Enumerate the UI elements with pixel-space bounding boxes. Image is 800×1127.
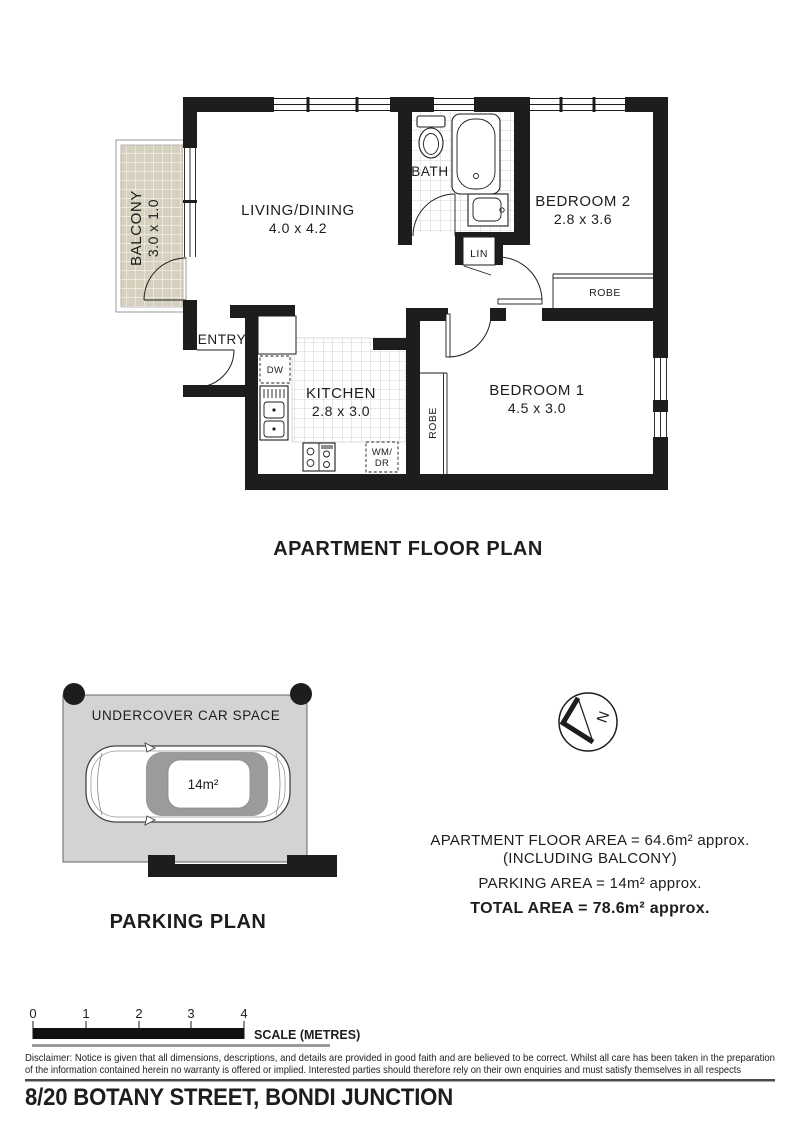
car-space-label: UNDERCOVER CAR SPACE (92, 708, 281, 723)
bedroom2-door (498, 257, 542, 304)
window-bedroom2 (530, 97, 625, 112)
vanity-sink-icon (468, 194, 508, 226)
disclaimer: Disclaimer: Notice is given that all dim… (25, 1053, 775, 1076)
scale-gray-line (32, 1044, 330, 1047)
scale-bar: 0 1 2 3 4 SCALE (METRES) (29, 1006, 360, 1047)
window-living (274, 97, 390, 112)
scale-ticks (33, 1021, 244, 1028)
disclaimer-line1: Disclaimer: Notice is given that all dim… (25, 1053, 775, 1064)
balcony-dims: 3.0 x 1.0 (145, 199, 161, 257)
window-balcony-slider (183, 148, 197, 257)
washer-dryer-box: WM/ DR (366, 442, 398, 472)
robe-bedroom1-label: ROBE (427, 407, 439, 439)
kitchen-name: KITCHEN (306, 385, 376, 402)
entry-name: ENTRY (198, 332, 247, 347)
robe-bedroom2-label: ROBE (589, 287, 621, 299)
window-bedroom1-lower (653, 412, 668, 437)
car-area-label: 14m² (188, 777, 219, 792)
scale-bar-rule (33, 1028, 245, 1039)
bedroom1-door (446, 314, 491, 357)
robe-bedroom2: ROBE (553, 274, 653, 308)
washer-label-line2: DR (375, 458, 389, 469)
dishwasher-label: DW (267, 365, 283, 376)
living-name: LIVING/DINING (241, 202, 355, 219)
area-line1: APARTMENT FLOOR AREA = 64.6m² approx. (430, 832, 749, 849)
stove-icon (303, 443, 335, 471)
bathtub-icon (452, 114, 500, 194)
footer-divider (25, 1079, 775, 1082)
north-letter: N (594, 709, 614, 725)
area-line4-total: TOTAL AREA = 78.6m² approx. (470, 900, 709, 917)
kitchen-sink-icon (260, 386, 288, 440)
column-left (63, 683, 85, 705)
balcony-name: BALCONY (128, 190, 145, 266)
parking-plan: UNDERCOVER CAR SPACE 14m² PARKING PLAN (63, 683, 337, 933)
scale-tick-3: 3 (187, 1006, 194, 1021)
entry-door (197, 350, 234, 387)
bedroom2-name: BEDROOM 2 (535, 193, 630, 210)
north-arrow-icon: N (559, 693, 617, 751)
scale-tick-1: 1 (82, 1006, 89, 1021)
floor-plan-canvas: BALCONY 3.0 x 1.0 (0, 0, 800, 1127)
window-bath (434, 97, 474, 112)
scale-tick-0: 0 (29, 1006, 36, 1021)
balcony-label: BALCONY 3.0 x 1.0 (128, 190, 161, 266)
bedroom2-dims: 2.8 x 3.6 (554, 211, 612, 227)
bedroom1-name: BEDROOM 1 (489, 382, 584, 399)
dishwasher-box: DW (260, 356, 290, 383)
area-line2: (INCLUDING BALCONY) (503, 850, 677, 867)
scale-tick-4: 4 (240, 1006, 247, 1021)
kitchen-dims: 2.8 x 3.0 (312, 403, 370, 419)
disclaimer-line2: of the information contained herein no w… (25, 1065, 741, 1076)
column-right (290, 683, 312, 705)
linen-label: LIN (470, 248, 488, 260)
linen-cupboard: LIN (463, 237, 495, 275)
scale-tick-2: 2 (135, 1006, 142, 1021)
scale-caption: SCALE (METRES) (254, 1028, 360, 1042)
toilet-icon (417, 116, 445, 158)
washer-label-line1: WM/ (372, 447, 392, 458)
bedroom1-dims: 4.5 x 3.0 (508, 400, 566, 416)
area-line3: PARKING AREA = 14m² approx. (478, 875, 701, 892)
area-summary: APARTMENT FLOOR AREA = 64.6m² approx. (I… (430, 832, 749, 917)
bath-name: BATH (411, 164, 448, 179)
apartment-floor-plan: BALCONY 3.0 x 1.0 (116, 97, 668, 560)
floor-plan-sheet: BALCONY 3.0 x 1.0 (0, 0, 800, 1127)
property-address: 8/20 BOTANY STREET, BONDI JUNCTION (25, 1084, 453, 1111)
apartment-plan-title: APARTMENT FLOOR PLAN (273, 538, 543, 560)
car-icon: 14m² (86, 743, 290, 825)
living-dims: 4.0 x 4.2 (269, 220, 327, 236)
kitchen-counter (258, 316, 296, 354)
window-bedroom1-upper (653, 358, 668, 400)
parking-plan-title: PARKING PLAN (110, 911, 267, 933)
robe-bedroom1: ROBE (420, 373, 447, 474)
balcony: BALCONY 3.0 x 1.0 (116, 140, 186, 312)
